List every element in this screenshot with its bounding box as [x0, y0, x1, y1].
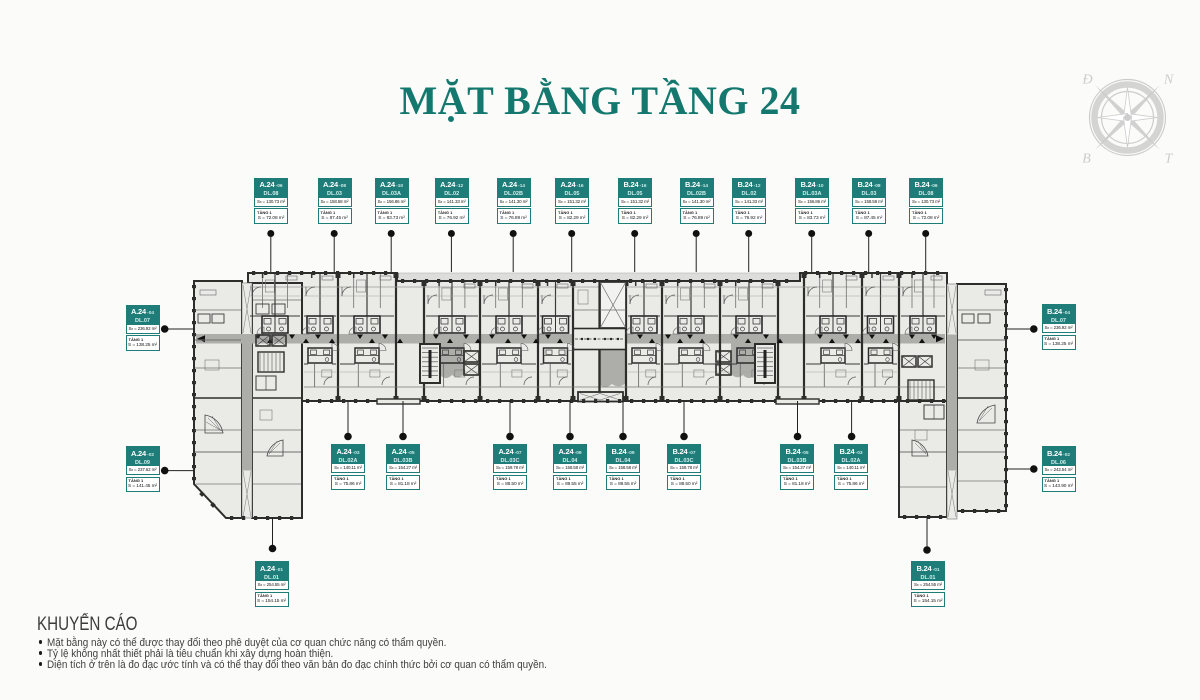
svg-text:T: T: [1165, 152, 1174, 167]
svg-text:B: B: [1082, 152, 1091, 167]
svg-text:N: N: [1163, 73, 1174, 88]
svg-text:Đ: Đ: [1081, 73, 1092, 88]
